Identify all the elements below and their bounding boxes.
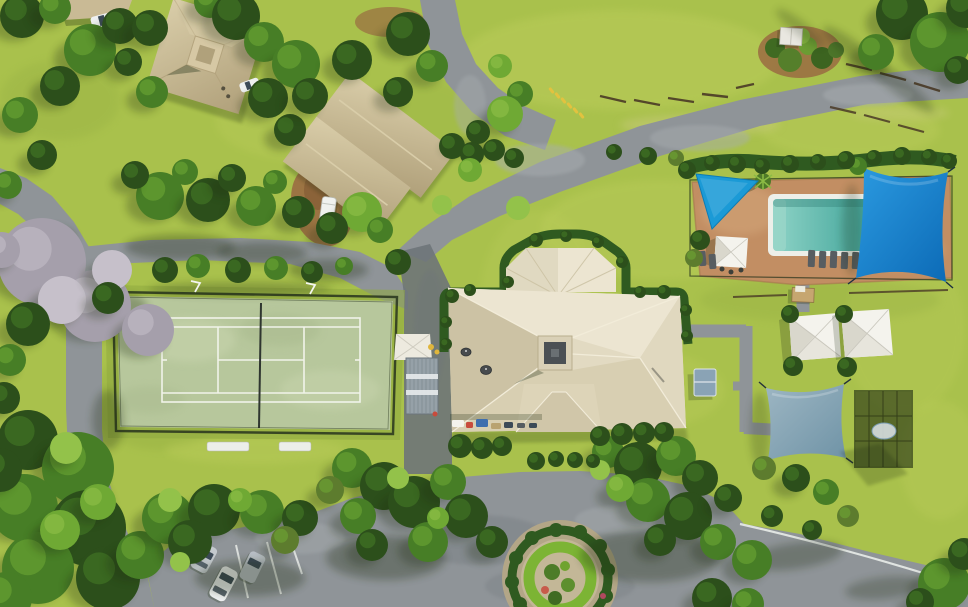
rect-item <box>466 422 473 428</box>
play-roof <box>795 286 805 292</box>
tree-highlight <box>837 307 846 316</box>
tree-highlight <box>510 84 523 97</box>
tree-highlight <box>631 482 653 504</box>
shed-stripe <box>406 374 438 379</box>
tree-highlight <box>839 507 850 518</box>
centre-flowers <box>541 586 549 594</box>
tree-highlight <box>44 514 64 534</box>
rect-item <box>529 423 537 428</box>
tree-highlight <box>370 220 383 233</box>
tree-highlight <box>451 436 463 448</box>
tree-highlight <box>804 522 814 532</box>
tree-highlight <box>943 155 951 163</box>
tree-highlight <box>360 532 376 548</box>
tree-highlight <box>175 162 188 175</box>
tree-highlight <box>388 252 401 265</box>
tree-highlight <box>635 424 646 435</box>
tree-highlight <box>336 44 356 64</box>
patch <box>650 125 750 151</box>
tree-highlight <box>503 277 509 283</box>
tree-highlight <box>717 487 731 501</box>
rect-item <box>491 423 501 429</box>
tree-highlight <box>6 101 24 119</box>
tree-highlight <box>344 502 362 520</box>
tree-highlight <box>550 453 558 461</box>
tree-highlight <box>43 281 67 305</box>
tree-highlight <box>531 234 538 241</box>
centre-shrub <box>561 578 575 592</box>
shed-ribs <box>410 358 434 414</box>
tree-highlight <box>756 160 764 168</box>
tree-highlight <box>681 305 687 311</box>
tree-highlight <box>617 257 623 263</box>
tree-highlight <box>608 146 616 154</box>
tree-highlight <box>140 79 156 95</box>
tree-highlight <box>337 259 346 268</box>
tree-highlight <box>434 468 452 486</box>
tree-highlight <box>839 359 849 369</box>
tree-highlight <box>429 509 440 520</box>
bench <box>279 442 311 451</box>
patch <box>165 436 345 464</box>
tree-highlight <box>660 440 680 460</box>
tree-highlight <box>755 458 767 470</box>
tree-highlight <box>619 447 643 471</box>
tree-highlight <box>704 528 722 546</box>
rect-item <box>830 251 838 268</box>
tree-highlight <box>785 467 799 481</box>
tree-highlight <box>730 157 739 166</box>
tree-highlight <box>839 153 848 162</box>
centre-flowers <box>600 593 606 599</box>
tree-highlight <box>240 190 260 210</box>
tree-highlight <box>277 45 301 69</box>
tree-highlight <box>96 254 116 274</box>
tree-highlight <box>656 424 666 434</box>
pool-chair <box>739 268 744 273</box>
tree-highlight <box>736 591 752 607</box>
island-shrub <box>778 48 802 72</box>
tree-highlight <box>155 260 168 273</box>
tree-highlight <box>44 70 64 90</box>
tree-highlight <box>221 167 235 181</box>
tree-highlight <box>449 498 471 520</box>
tree-highlight <box>336 452 356 472</box>
patch <box>148 282 332 296</box>
tree-highlight <box>11 306 33 328</box>
tree-highlight <box>480 529 496 545</box>
tree-highlight <box>447 290 454 297</box>
tree-highlight <box>296 82 314 100</box>
tree-highlight <box>923 151 931 159</box>
tree-highlight <box>231 490 243 502</box>
tree-highlight <box>485 141 496 152</box>
tree-highlight <box>274 529 288 543</box>
tree-highlight <box>785 358 795 368</box>
hedge-bump <box>573 525 587 539</box>
tree-highlight <box>441 339 447 345</box>
tree-highlight <box>641 149 650 158</box>
pool-chair <box>720 267 725 272</box>
tree-highlight <box>593 237 599 243</box>
tree-highlight <box>84 488 102 506</box>
tree-highlight <box>569 454 577 462</box>
tree-highlight <box>319 479 333 493</box>
tree-highlight <box>124 164 138 178</box>
tree-highlight <box>686 464 704 482</box>
dish-centre <box>465 350 467 352</box>
tree-highlight <box>5 416 35 446</box>
tree-highlight <box>895 149 904 158</box>
court-mottle <box>115 386 185 414</box>
tree-highlight <box>286 504 304 522</box>
patch <box>288 259 368 281</box>
tree-highlight <box>391 16 413 38</box>
hedge-bump <box>525 531 539 545</box>
rect-item <box>708 254 716 269</box>
tree-highlight <box>117 51 131 65</box>
patch <box>195 560 305 596</box>
court-mottle <box>280 370 380 410</box>
tree-highlight <box>680 163 689 172</box>
tree-highlight <box>412 526 432 546</box>
tree-highlight <box>494 438 504 448</box>
tree-highlight <box>473 439 484 450</box>
tree-highlight <box>248 26 268 46</box>
tree-highlight <box>736 544 756 564</box>
centre-shrub <box>544 564 560 580</box>
tree-highlight <box>386 80 401 95</box>
rect-item <box>819 251 827 268</box>
tree-highlight <box>509 198 521 210</box>
tree-highlight <box>128 309 154 335</box>
cupola-top <box>551 349 559 357</box>
tree-highlight <box>252 82 272 102</box>
tree-highlight <box>613 425 624 436</box>
hedge-bump <box>549 523 563 537</box>
tree-highlight <box>461 160 473 172</box>
rect-item <box>504 422 513 428</box>
tree-highlight <box>303 263 314 274</box>
tree-highlight <box>783 157 792 166</box>
wall-shade <box>450 414 542 420</box>
tree-highlight <box>463 144 475 156</box>
rect-item <box>517 423 525 428</box>
tree-highlight <box>609 477 623 491</box>
tree-highlight <box>588 455 595 462</box>
tree-highlight <box>947 59 961 73</box>
tree-highlight <box>96 285 112 301</box>
centre-shrub <box>560 561 570 571</box>
tree-highlight <box>659 286 666 293</box>
tree-highlight <box>189 256 201 268</box>
rect-item <box>476 419 488 427</box>
tree-highlight <box>706 157 714 165</box>
tree-highlight <box>365 467 389 491</box>
tree-highlight <box>687 251 696 260</box>
tree-highlight <box>465 285 471 291</box>
tree-highlight <box>161 490 173 502</box>
aerial-photo <box>0 0 968 607</box>
tree-highlight <box>442 136 455 149</box>
yellow-object <box>435 350 440 355</box>
rect-item <box>452 420 464 427</box>
tree-highlight <box>952 541 968 557</box>
tree-highlight <box>816 482 829 495</box>
patch <box>850 105 950 121</box>
tree-highlight <box>278 117 294 133</box>
tree-highlight <box>173 524 195 546</box>
tree-highlight <box>592 428 602 438</box>
patch <box>125 234 235 260</box>
tree-highlight <box>491 100 509 118</box>
tree-highlight <box>561 231 567 237</box>
tree-highlight <box>389 469 400 480</box>
bench <box>207 442 249 451</box>
tree-highlight <box>812 156 820 164</box>
tree-highlight <box>491 56 503 68</box>
tree-highlight <box>696 582 716 602</box>
tree-highlight <box>669 497 693 521</box>
tree-highlight <box>648 527 664 543</box>
tree-highlight <box>909 591 923 605</box>
tree-highlight <box>506 150 516 160</box>
tree-highlight <box>194 489 220 515</box>
tree-highlight <box>420 53 436 69</box>
tree-highlight <box>30 143 45 158</box>
tree-highlight <box>763 507 774 518</box>
tree-highlight <box>54 435 70 451</box>
tree-highlight <box>692 232 702 242</box>
tree-highlight <box>286 199 302 215</box>
tree-highlight <box>266 172 278 184</box>
trampoline <box>872 423 896 439</box>
yellow-object <box>428 344 434 350</box>
tree-highlight <box>172 554 182 564</box>
tree-highlight <box>228 260 241 273</box>
rect-item <box>808 250 816 267</box>
tree-highlight <box>106 12 124 30</box>
tree-highlight <box>267 258 279 270</box>
tree-highlight <box>346 196 366 216</box>
hedge-bump <box>509 551 523 565</box>
shed-stripe <box>406 390 438 395</box>
tree-highlight <box>670 152 678 160</box>
tree-highlight <box>635 287 641 293</box>
tree-highlight <box>469 122 481 134</box>
tree-highlight <box>783 307 792 316</box>
tree-highlight <box>868 152 876 160</box>
red-bin <box>433 412 438 417</box>
tree-highlight <box>320 215 336 231</box>
tree-highlight <box>136 14 154 32</box>
centre-shrub <box>548 591 562 605</box>
tree-highlight <box>529 454 538 463</box>
pool-chair <box>729 270 734 275</box>
tree-highlight <box>70 29 96 55</box>
tree-highlight <box>434 197 444 207</box>
tree-highlight <box>862 38 880 56</box>
tree-highlight <box>441 317 447 323</box>
tree-highlight <box>682 331 688 337</box>
dish-centre <box>485 368 487 370</box>
aerial-photo-stage <box>0 0 968 607</box>
hedge-bump <box>505 575 519 589</box>
